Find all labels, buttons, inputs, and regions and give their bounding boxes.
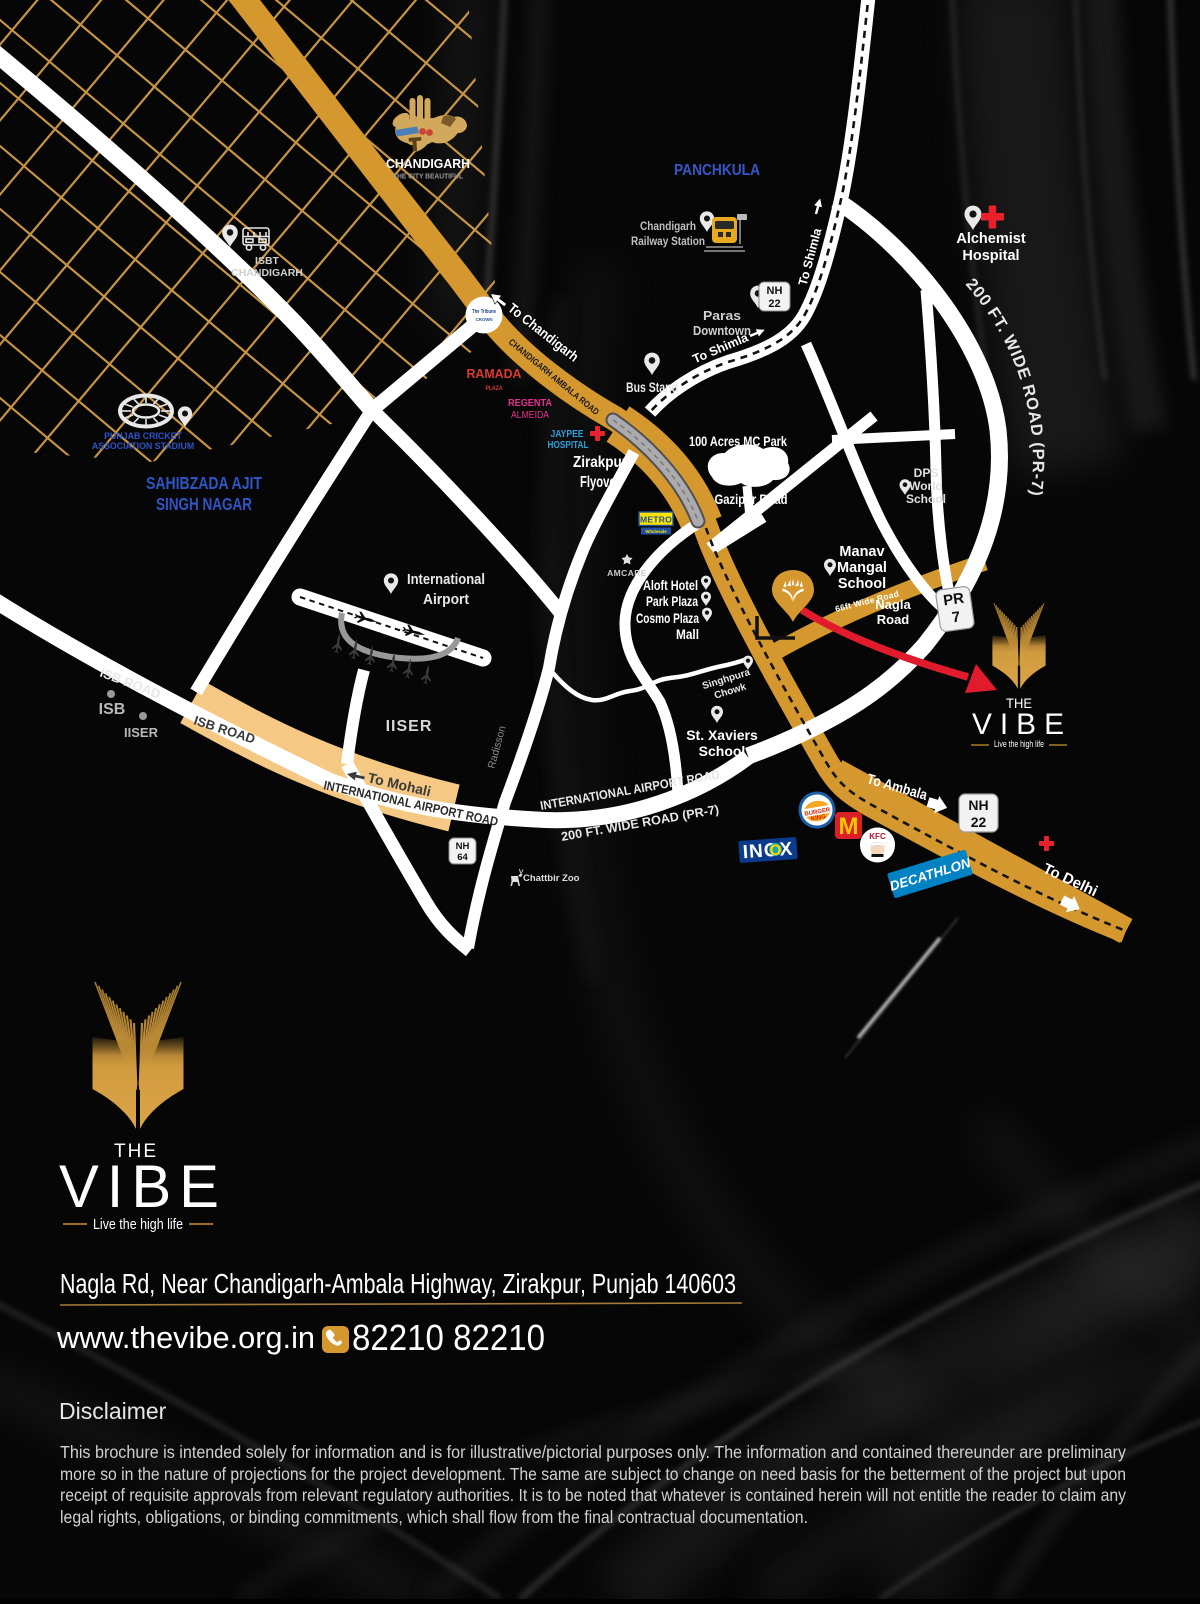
svg-text:School: School — [838, 576, 886, 592]
svg-text:O: O — [769, 842, 782, 860]
svg-text:Bus Stand: Bus Stand — [626, 380, 678, 395]
svg-text:JAYPEE: JAYPEE — [551, 429, 584, 440]
svg-text:Nagla: Nagla — [875, 597, 911, 612]
svg-text:22: 22 — [971, 814, 987, 830]
svg-text:Flyover: Flyover — [580, 474, 620, 491]
svg-text:CHANDIGARH: CHANDIGARH — [386, 156, 470, 171]
svg-text:PLAZA: PLAZA — [486, 386, 504, 392]
svg-text:Gazipur Road: Gazipur Road — [715, 491, 788, 507]
svg-text:ASSOCIATION STADIUM: ASSOCIATION STADIUM — [92, 441, 194, 451]
svg-text:THE CITY BEAUTIFUL: THE CITY BEAUTIFUL — [393, 172, 463, 181]
svg-text:School: School — [699, 743, 746, 759]
svg-text:IISER: IISER — [124, 725, 159, 740]
svg-text:St. Xaviers: St. Xaviers — [686, 727, 758, 743]
svg-text:CROWN: CROWN — [476, 317, 493, 322]
svg-text:legal rights, obligations, or: legal rights, obligations, or binding co… — [60, 1507, 808, 1527]
svg-text:Nagla Rd, Near Chandigarh-Amba: Nagla Rd, Near Chandigarh-Ambala Highway… — [60, 1268, 736, 1299]
svg-text:Cosmo Plaza: Cosmo Plaza — [636, 610, 699, 626]
svg-text:PANCHKULA: PANCHKULA — [674, 162, 760, 179]
svg-text:The Tribune: The Tribune — [472, 309, 497, 315]
svg-text:receipt of requisite approvals: receipt of requisite approvals from rele… — [60, 1485, 1126, 1505]
svg-text:PR: PR — [942, 590, 965, 610]
svg-text:Live the high life: Live the high life — [93, 1216, 183, 1233]
svg-text:Wholesale: Wholesale — [645, 529, 667, 534]
svg-text:SINGH NAGAR: SINGH NAGAR — [156, 494, 252, 514]
svg-text:Park Plaza: Park Plaza — [646, 593, 698, 609]
svg-text:World: World — [909, 479, 943, 493]
svg-text:Live the high life: Live the high life — [994, 739, 1044, 749]
svg-text:22: 22 — [768, 298, 780, 310]
svg-text:Hospital: Hospital — [962, 248, 1019, 264]
svg-text:HOSPITAL: HOSPITAL — [548, 440, 589, 451]
svg-text:INOX: INOX — [742, 839, 794, 863]
svg-text:Zirakpur: Zirakpur — [573, 454, 627, 471]
svg-text:PUNJAB CRICKET: PUNJAB CRICKET — [104, 431, 182, 441]
svg-text:CHANDIGARH: CHANDIGARH — [231, 267, 303, 279]
svg-text:VIBE: VIBE — [59, 1153, 227, 1220]
svg-text:IISER: IISER — [386, 718, 433, 735]
svg-text:Mangal: Mangal — [837, 560, 887, 576]
svg-text:100 Acres MC Park: 100 Acres MC Park — [689, 433, 787, 449]
svg-text:Railway Station: Railway Station — [631, 234, 705, 248]
svg-text:RAMADA: RAMADA — [467, 367, 522, 381]
svg-text:M: M — [839, 813, 859, 840]
svg-text:METRO: METRO — [640, 515, 672, 525]
svg-text:Chandigarh: Chandigarh — [640, 219, 696, 233]
svg-text:DPS: DPS — [914, 466, 939, 480]
svg-text:Airport: Airport — [423, 591, 469, 608]
svg-text:SAHIBZADA AJIT: SAHIBZADA AJIT — [146, 473, 262, 493]
svg-text:Disclaimer: Disclaimer — [59, 1398, 167, 1424]
svg-text:Road: Road — [877, 612, 910, 627]
svg-text:64: 64 — [457, 852, 468, 863]
svg-text:School: School — [906, 492, 946, 506]
svg-text:AMCARE: AMCARE — [607, 568, 647, 578]
svg-text:ALMEIDA: ALMEIDA — [511, 410, 549, 421]
svg-text:Manav: Manav — [839, 544, 884, 560]
svg-text:NH: NH — [767, 285, 783, 297]
svg-text:KFC: KFC — [869, 832, 886, 841]
svg-text:Paras: Paras — [703, 308, 741, 323]
svg-text:NH: NH — [456, 841, 470, 852]
svg-text:This brochure is intended sole: This brochure is intended solely for inf… — [60, 1442, 1126, 1462]
svg-text:NH: NH — [968, 797, 988, 813]
svg-text:ISBT: ISBT — [255, 255, 280, 267]
svg-text:ISB: ISB — [99, 701, 126, 718]
svg-text:Chattbir Zoo: Chattbir Zoo — [523, 873, 580, 884]
svg-text:Mall: Mall — [676, 626, 699, 642]
svg-text:more so in the nature of proje: more so in the nature of projections for… — [60, 1464, 1126, 1484]
svg-text:Alchemist: Alchemist — [956, 231, 1025, 247]
svg-text:REGENTA: REGENTA — [508, 398, 552, 409]
svg-text:Aloft Hotel: Aloft Hotel — [643, 577, 698, 593]
svg-text:82210 82210: 82210 82210 — [352, 1317, 545, 1358]
svg-text:www.thevibe.org.in: www.thevibe.org.in — [56, 1320, 315, 1355]
svg-text:VIBE: VIBE — [972, 708, 1072, 741]
svg-text:International: International — [407, 571, 485, 588]
